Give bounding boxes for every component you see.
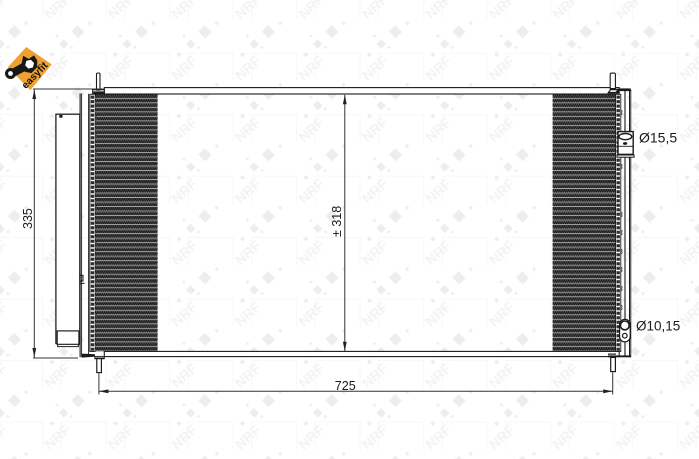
svg-text:Ø15,5: Ø15,5 [639, 130, 677, 146]
svg-text:± 318: ± 318 [330, 206, 344, 237]
svg-text:335: 335 [21, 208, 35, 229]
svg-text:Ø10,15: Ø10,15 [636, 319, 680, 334]
svg-text:725: 725 [335, 379, 356, 393]
